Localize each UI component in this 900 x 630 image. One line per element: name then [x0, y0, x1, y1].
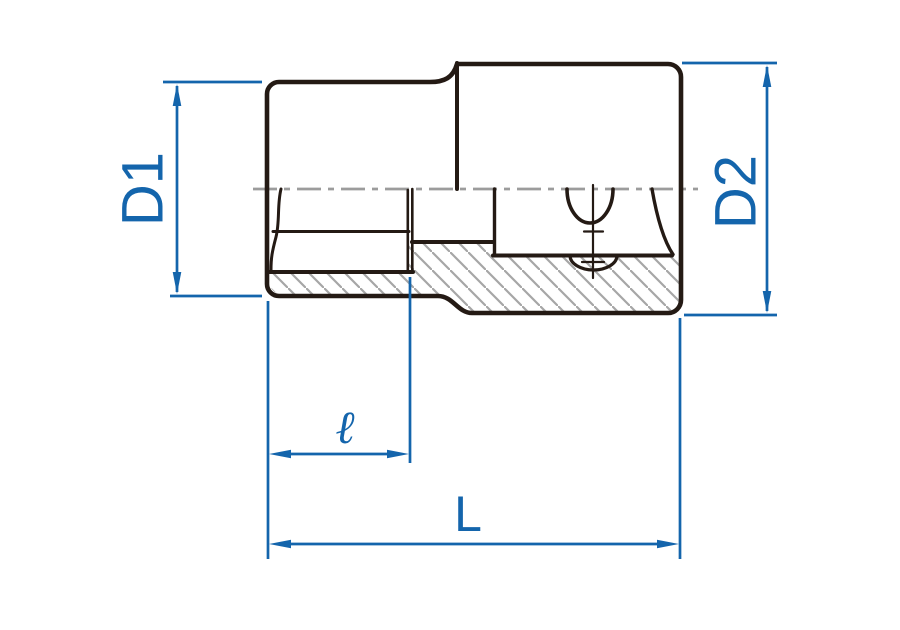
d2-arrow-down [763, 291, 772, 313]
l-total-dimension-label: L [454, 486, 482, 542]
rear-chamfer-curve [652, 189, 673, 255]
d2-dimension-label: D2 [704, 155, 769, 229]
front-hex-chamfer-curve [271, 189, 281, 270]
l-small-arrow-right [387, 450, 409, 459]
detent-hole-arc [567, 189, 613, 223]
d2-arrow-up [763, 65, 772, 87]
drawing-page: D1 D2 ℓ L [0, 0, 900, 630]
l-total-arrow-right [657, 540, 679, 549]
section-hatch-region [270, 242, 679, 311]
l-small-arrow-left [269, 450, 291, 459]
d1-dimension-label: D1 [111, 152, 176, 226]
l-total-arrow-left [269, 540, 291, 549]
l-small-dimension-label: ℓ [335, 400, 355, 454]
technical-drawing-canvas: D1 D2 ℓ L [0, 0, 900, 630]
d1-arrow-down [173, 272, 182, 294]
d1-arrow-up [173, 84, 182, 106]
